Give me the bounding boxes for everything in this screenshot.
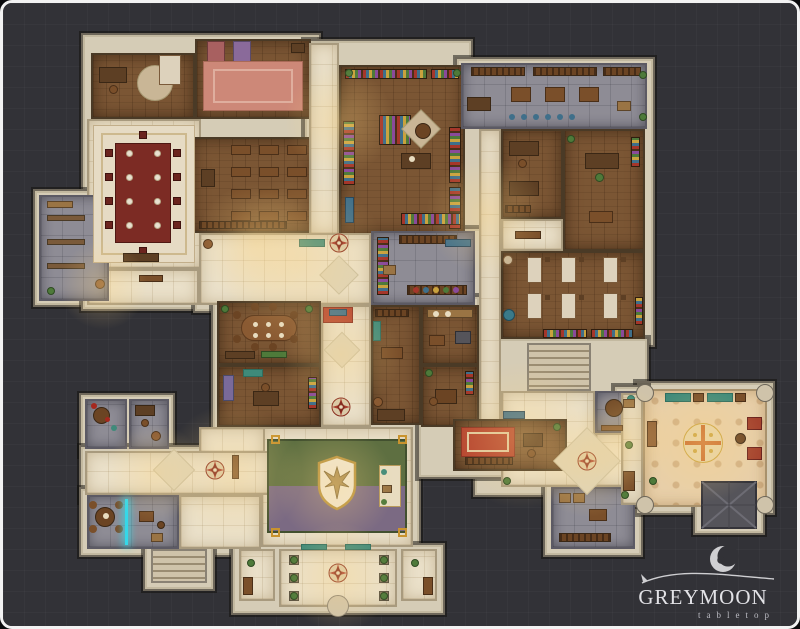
logo-title: GREYMOON — [621, 587, 785, 608]
plant — [639, 113, 647, 121]
library-table — [415, 123, 431, 139]
chair — [595, 173, 604, 182]
bookshelf — [343, 121, 355, 185]
stool — [509, 114, 515, 120]
bookshelf — [345, 69, 427, 79]
table — [139, 511, 154, 522]
bread — [445, 311, 451, 317]
flask — [111, 425, 117, 431]
chair — [115, 525, 123, 533]
plant — [503, 477, 511, 485]
plant — [247, 559, 255, 567]
chair — [251, 343, 259, 351]
student-desk — [231, 211, 251, 221]
shelf — [465, 457, 513, 465]
bed — [159, 55, 181, 85]
goods — [423, 287, 429, 293]
crate — [617, 101, 631, 111]
rug-dot — [709, 433, 713, 437]
guild-crest — [315, 455, 359, 511]
chair — [518, 159, 527, 168]
weapon-rack — [471, 67, 525, 76]
chair — [251, 303, 259, 311]
plant — [425, 369, 433, 377]
bed — [561, 257, 576, 283]
bread — [433, 311, 439, 317]
weapon-rack — [603, 67, 641, 76]
student-desk — [259, 145, 279, 155]
plant — [453, 69, 461, 77]
sideboard — [123, 253, 159, 262]
bookshelf — [308, 377, 317, 409]
bench — [503, 411, 525, 419]
student-desk — [231, 145, 251, 155]
round-table — [605, 399, 623, 417]
chair — [269, 303, 277, 311]
chair — [105, 221, 113, 229]
papers — [103, 513, 109, 519]
bookshelf — [635, 297, 643, 325]
carpet-pattern — [467, 432, 509, 452]
bookshelf — [631, 137, 640, 167]
corner-ornament — [398, 435, 407, 444]
side-table — [735, 433, 746, 444]
chair — [290, 311, 298, 319]
chair — [527, 449, 536, 458]
staircase — [151, 549, 207, 583]
plate — [154, 150, 161, 157]
chair — [173, 149, 181, 157]
chair — [173, 221, 181, 229]
table — [579, 87, 599, 102]
tower — [756, 496, 774, 514]
tower — [636, 496, 654, 514]
plate — [253, 322, 258, 327]
chair — [173, 173, 181, 181]
compass-medallion — [328, 563, 348, 583]
student-desk — [231, 167, 251, 177]
student-desk — [287, 167, 307, 177]
bush — [380, 592, 388, 600]
rug-dot — [709, 449, 713, 453]
bed — [527, 257, 542, 283]
trough — [47, 201, 73, 208]
side-table — [693, 393, 704, 402]
stool — [545, 114, 551, 120]
corner-ornament — [271, 528, 280, 537]
planter-strip — [301, 544, 327, 550]
plate — [279, 322, 284, 327]
chair — [290, 335, 298, 343]
bush — [380, 556, 388, 564]
item — [381, 499, 387, 505]
goods — [413, 287, 419, 293]
blood-spot — [91, 403, 97, 409]
plate — [154, 222, 161, 229]
compass-medallion — [577, 451, 597, 471]
chair — [89, 525, 97, 533]
desk — [509, 181, 539, 196]
plant — [625, 441, 633, 449]
student-desk — [259, 211, 279, 221]
plate — [154, 174, 161, 181]
dresser — [291, 43, 305, 53]
planter-strip — [345, 544, 371, 550]
dining-table — [115, 143, 171, 243]
item — [381, 469, 387, 475]
chair — [141, 419, 149, 427]
barrel — [203, 239, 213, 249]
sideboard — [225, 351, 255, 359]
plant — [621, 491, 629, 499]
entry-step — [327, 595, 349, 617]
map-frame: GREYMOON tabletop — [0, 0, 800, 629]
desk — [99, 67, 127, 83]
student-desk — [259, 167, 279, 177]
plate — [126, 174, 133, 181]
armchair — [747, 417, 762, 430]
plant — [649, 477, 657, 485]
plate — [126, 150, 133, 157]
chair — [269, 343, 277, 351]
student-desk — [259, 189, 279, 199]
bed — [561, 293, 576, 319]
tower — [636, 384, 654, 402]
crate — [559, 493, 571, 503]
crate — [151, 533, 163, 542]
chair — [109, 85, 118, 94]
stool — [569, 114, 575, 120]
chair — [173, 197, 181, 205]
table — [545, 87, 565, 102]
logo-subtitle: tabletop — [621, 610, 785, 620]
nightstand — [621, 295, 626, 300]
nightstand — [579, 257, 584, 262]
table — [589, 211, 613, 223]
plant — [639, 71, 647, 79]
bench — [243, 577, 253, 595]
room-corridor-v2 — [479, 129, 501, 427]
plant — [553, 423, 561, 431]
chair — [105, 173, 113, 181]
barrel — [373, 397, 383, 407]
plate — [126, 198, 133, 205]
student-desk — [287, 189, 307, 199]
plate — [126, 222, 133, 229]
compass-medallion — [205, 460, 225, 480]
bed — [603, 293, 618, 319]
plate — [266, 333, 271, 338]
bench — [623, 471, 635, 491]
plant — [567, 135, 575, 143]
lectern — [201, 169, 215, 187]
bush — [290, 574, 298, 582]
desk — [401, 153, 431, 169]
chair — [429, 397, 438, 406]
corner-ornament — [398, 528, 407, 537]
nightstand — [545, 295, 550, 300]
cabinet — [373, 321, 381, 341]
goods — [453, 287, 459, 293]
plate — [266, 322, 271, 327]
shelf — [199, 221, 287, 229]
chair — [139, 131, 147, 139]
chair — [233, 311, 241, 319]
student-desk — [287, 211, 307, 221]
bush — [290, 556, 298, 564]
stall — [47, 263, 85, 269]
stool — [157, 521, 165, 529]
plant — [305, 305, 313, 313]
barrel — [95, 279, 105, 289]
bench — [665, 393, 691, 402]
greymoon-logo: GREYMOON tabletop — [621, 543, 785, 620]
energy-partition — [125, 499, 128, 545]
bench — [345, 197, 354, 223]
crate — [573, 493, 585, 503]
crescent-moon-icon — [628, 543, 778, 587]
chair — [89, 501, 97, 509]
carpet-pattern — [213, 69, 293, 103]
bookshelf — [449, 127, 461, 183]
tower — [756, 384, 774, 402]
shelf — [505, 205, 531, 213]
stall — [47, 215, 85, 221]
student-desk — [231, 189, 251, 199]
desk — [467, 97, 491, 111]
nightstand — [545, 257, 550, 262]
bench — [299, 239, 325, 247]
bench — [707, 393, 733, 402]
compass-medallion — [331, 397, 351, 417]
bench — [423, 577, 433, 595]
goods — [443, 287, 449, 293]
plant — [221, 305, 229, 313]
basin — [329, 309, 347, 316]
nightstand — [579, 295, 584, 300]
plate — [154, 198, 161, 205]
plate — [253, 333, 258, 338]
table — [429, 335, 445, 346]
desk — [523, 433, 543, 447]
corner-ornament — [271, 435, 280, 444]
desk — [135, 405, 155, 416]
rug-dot — [693, 433, 697, 437]
barrel — [151, 431, 161, 441]
bookshelf — [591, 329, 633, 338]
crate — [382, 485, 392, 493]
table — [589, 509, 607, 521]
rug-cross — [701, 425, 705, 461]
nightstand — [621, 257, 626, 262]
bench — [139, 275, 163, 282]
chair — [233, 335, 241, 343]
armchair — [747, 447, 762, 460]
bench — [601, 425, 623, 431]
stove — [455, 331, 471, 344]
goods — [433, 287, 439, 293]
stool — [533, 114, 539, 120]
globe — [503, 309, 515, 321]
compass-medallion — [329, 233, 349, 253]
staircase — [527, 343, 591, 391]
room-library — [339, 65, 465, 235]
rug-dot — [693, 449, 697, 453]
plant — [345, 69, 353, 77]
bush — [290, 592, 298, 600]
crate — [383, 265, 396, 275]
stool — [557, 114, 563, 120]
side-table — [735, 393, 746, 402]
bench — [515, 231, 541, 239]
sofa — [647, 421, 657, 447]
stool — [521, 114, 527, 120]
roof-pavilion — [701, 481, 757, 529]
crate — [623, 399, 635, 408]
bookshelf — [401, 213, 461, 225]
desk — [509, 141, 539, 156]
student-desk — [287, 145, 307, 155]
plant — [411, 559, 419, 567]
bench — [445, 239, 471, 247]
bush — [380, 574, 388, 582]
cabinet — [243, 369, 263, 377]
blood-spot — [105, 417, 110, 422]
papers — [409, 156, 415, 162]
table — [381, 347, 403, 359]
clock — [503, 255, 513, 265]
battle-map-canvas[interactable] — [3, 3, 797, 626]
stall — [47, 239, 85, 245]
chair — [115, 501, 123, 509]
desk — [253, 391, 279, 406]
bookshelf — [543, 329, 587, 338]
bed — [527, 293, 542, 319]
desk — [377, 409, 405, 421]
bench — [232, 455, 239, 479]
bookshelf — [465, 371, 474, 395]
chair — [105, 197, 113, 205]
planter — [261, 351, 287, 358]
room-corridor-top — [309, 43, 339, 235]
couch — [223, 375, 234, 401]
plant — [47, 287, 55, 295]
weapon-rack — [533, 67, 597, 76]
plate — [279, 333, 284, 338]
shelf — [559, 533, 611, 542]
room-corridor-s2 — [179, 495, 261, 549]
table — [511, 87, 531, 102]
shelf — [375, 309, 409, 317]
chair — [105, 149, 113, 157]
bed — [603, 257, 618, 283]
desk — [585, 153, 619, 169]
table — [435, 389, 457, 404]
chair — [261, 383, 270, 392]
